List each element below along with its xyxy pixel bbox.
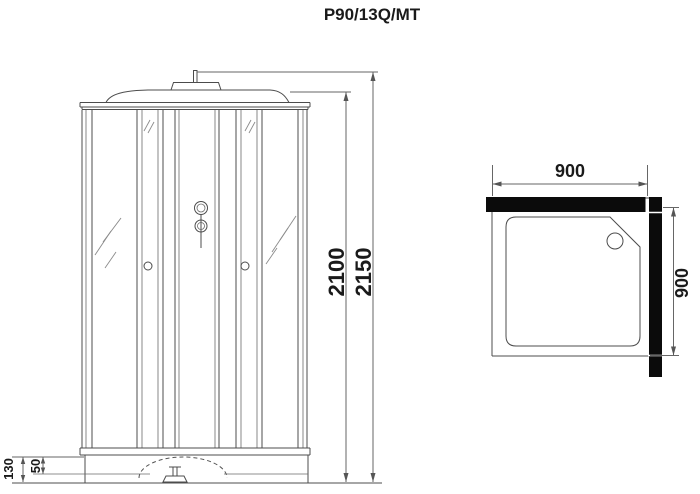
front-view: 2100 2150 130 50 — [1, 71, 382, 484]
panel-frame-lines — [82, 110, 307, 448]
left-glass-reflection — [95, 218, 121, 268]
technical-drawing-page: P90/13Q/MT — [0, 0, 700, 494]
dim-tray-width: 900 — [493, 161, 648, 196]
tray-inner-rim — [506, 217, 640, 346]
plan-view: 900 900 — [486, 161, 692, 377]
glass-hatch-top-right — [245, 120, 255, 133]
dim-tray-depth-plan-label: 900 — [672, 268, 692, 298]
roof-cap — [171, 83, 221, 91]
dim-tray-depth-label: 50 — [28, 459, 43, 473]
mixer-control-icon — [195, 202, 208, 249]
adjustable-foot-icon — [163, 467, 187, 482]
dim-tray-depth: 50 — [28, 457, 45, 474]
dim-tray-width-label: 900 — [555, 161, 585, 181]
dim-base-height: 130 — [1, 457, 25, 482]
wall-right — [649, 197, 662, 377]
cornice — [80, 103, 310, 110]
door-handle-right — [241, 262, 249, 270]
dim-total-height: 2150 — [351, 72, 376, 482]
tray-outline — [492, 198, 650, 356]
wall-top — [486, 197, 646, 212]
dim-base-height-label: 130 — [1, 458, 16, 480]
drawing-title: P90/13Q/MT — [324, 5, 421, 24]
roof-dome — [106, 90, 289, 103]
dim-cabin-height-label: 2100 — [324, 248, 349, 297]
glass-hatch-top-left — [144, 120, 154, 133]
drain-hole-icon — [607, 233, 623, 249]
tray-base — [33, 448, 310, 483]
door-handle-left — [144, 262, 152, 270]
drawing-canvas: P90/13Q/MT — [0, 0, 700, 494]
drain-arc — [139, 457, 227, 478]
dim-cabin-height: 2100 — [324, 92, 349, 482]
dim-total-height-label: 2150 — [351, 248, 376, 297]
vent-pipe-icon — [194, 71, 198, 83]
right-glass-reflection — [266, 216, 296, 264]
